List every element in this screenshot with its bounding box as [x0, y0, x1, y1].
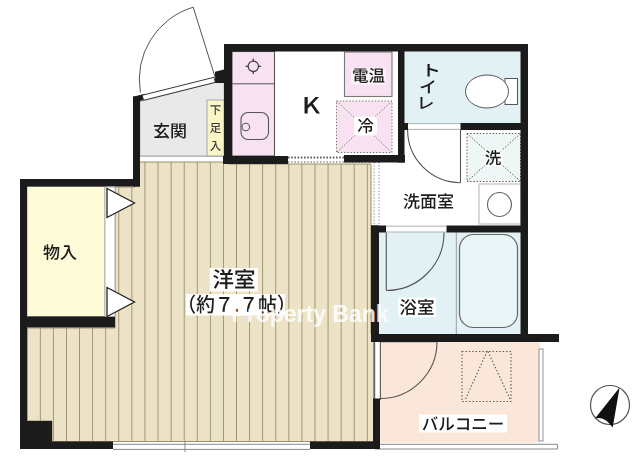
svg-text:Property Bank: Property Bank [231, 301, 388, 327]
